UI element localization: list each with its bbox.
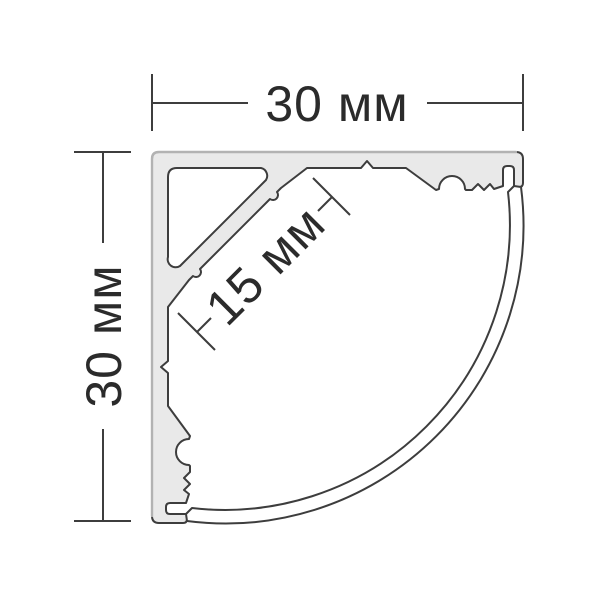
left-height-label: 30 мм xyxy=(76,264,132,407)
top-width-label: 30 мм xyxy=(265,76,408,132)
dimension-line-stub xyxy=(318,197,332,211)
diffuser-lens xyxy=(186,186,523,523)
dimension-line-stub xyxy=(197,318,211,332)
left-height-dimension: 30 мм xyxy=(74,152,132,521)
profile-cross-section-drawing: 30 мм 30 мм 15 мм xyxy=(0,0,600,600)
top-width-dimension: 30 мм xyxy=(152,74,523,132)
technical-drawing-canvas: 30 мм 30 мм 15 мм xyxy=(0,0,600,600)
